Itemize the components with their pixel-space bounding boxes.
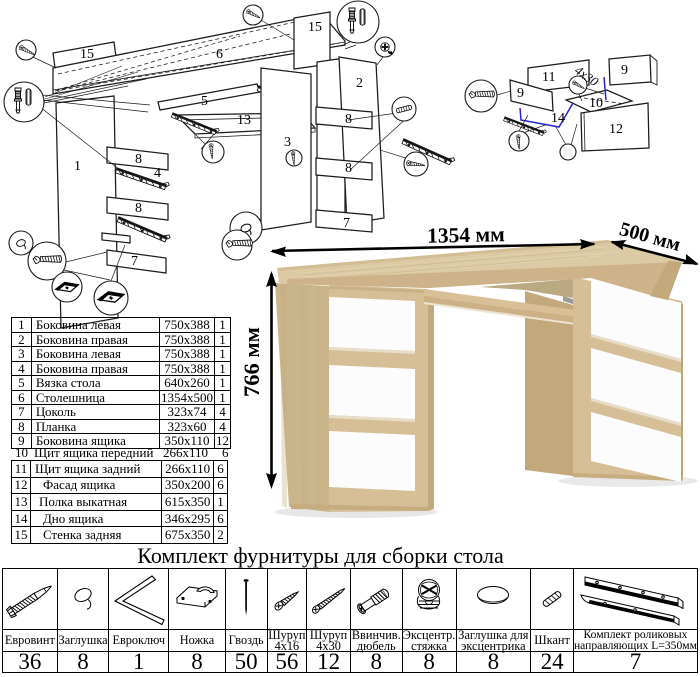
svg-text:15: 15 — [308, 20, 322, 35]
svg-text:7: 7 — [131, 254, 138, 269]
svg-text:7: 7 — [343, 216, 350, 231]
svg-text:8: 8 — [345, 112, 352, 127]
svg-text:8: 8 — [345, 161, 352, 176]
svg-text:766 мм: 766 мм — [239, 327, 264, 397]
svg-text:8: 8 — [135, 152, 142, 167]
svg-text:4: 4 — [154, 166, 161, 181]
svg-text:11: 11 — [542, 70, 555, 85]
svg-text:2: 2 — [356, 76, 363, 91]
svg-text:10: 10 — [589, 96, 603, 111]
svg-text:14: 14 — [551, 111, 565, 126]
svg-text:9: 9 — [621, 63, 628, 78]
svg-text:12: 12 — [609, 122, 623, 137]
svg-text:8: 8 — [135, 201, 142, 216]
svg-text:5: 5 — [201, 94, 208, 109]
svg-text:6: 6 — [216, 47, 223, 62]
svg-text:9: 9 — [517, 86, 524, 101]
svg-text:1354 мм: 1354 мм — [427, 222, 505, 248]
svg-text:13: 13 — [237, 113, 251, 128]
svg-text:15: 15 — [80, 47, 94, 62]
svg-text:3: 3 — [284, 135, 291, 150]
svg-text:1: 1 — [74, 159, 81, 174]
